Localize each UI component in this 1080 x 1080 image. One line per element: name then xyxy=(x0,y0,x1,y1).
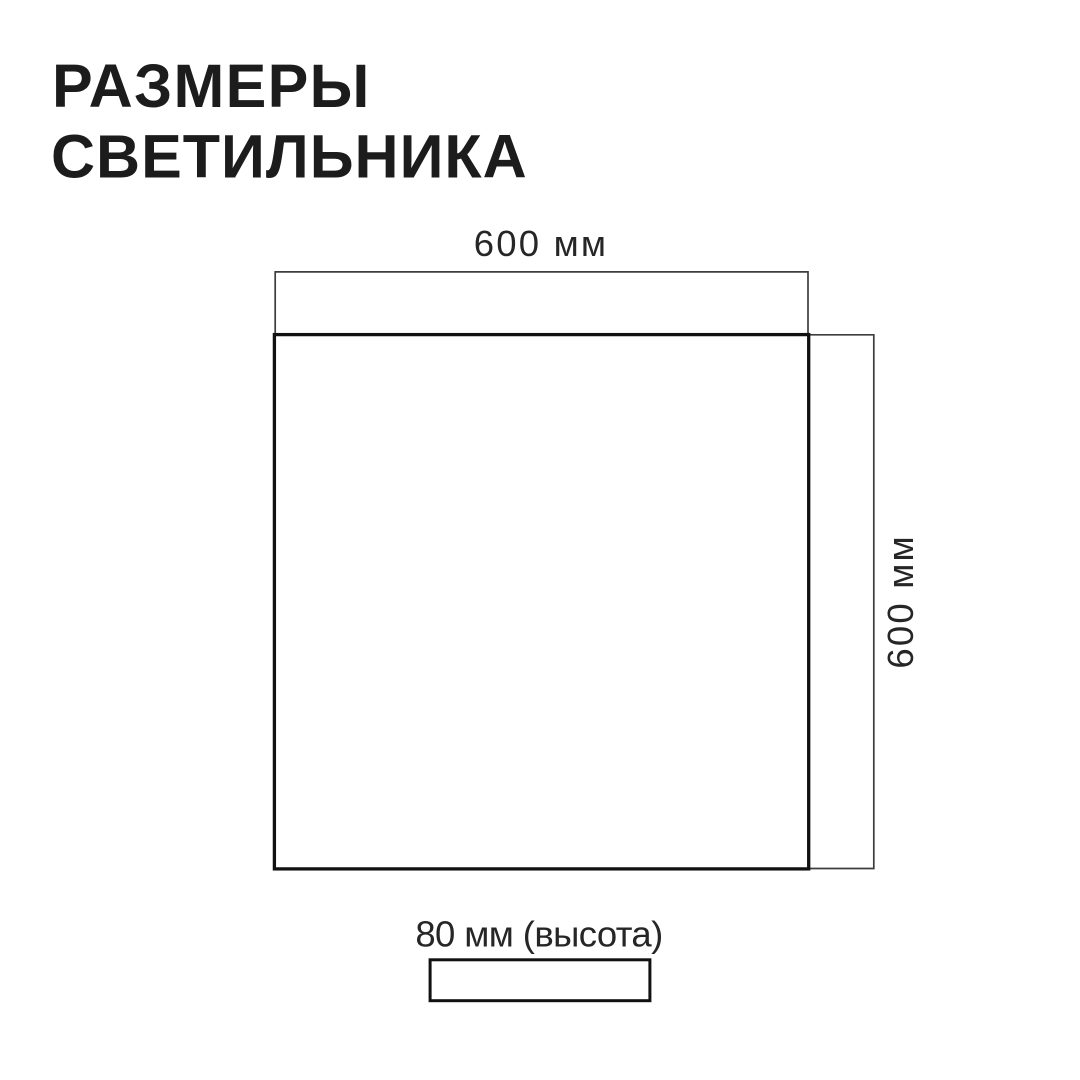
svg-text:600 мм: 600 мм xyxy=(880,534,921,668)
svg-text:80 мм (высота): 80 мм (высота) xyxy=(415,914,662,955)
svg-text:СВЕТИЛЬНИКА: СВЕТИЛЬНИКА xyxy=(51,123,528,191)
svg-text:600 мм: 600 мм xyxy=(474,223,608,264)
svg-text:РАЗМЕРЫ: РАЗМЕРЫ xyxy=(52,52,371,120)
